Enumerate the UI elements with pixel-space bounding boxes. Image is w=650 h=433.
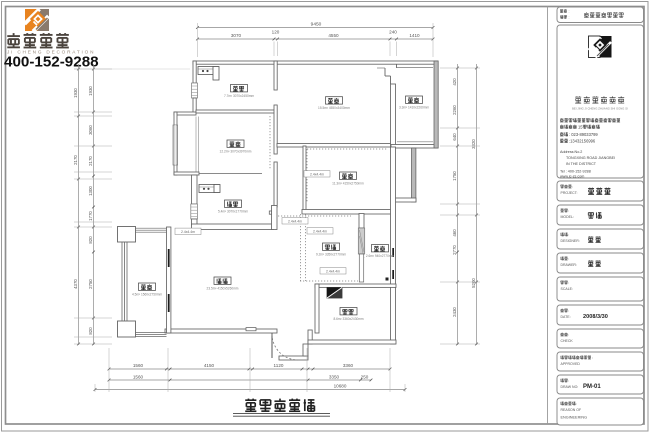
svg-text:2170: 2170: [73, 155, 78, 165]
svg-text::: :: [592, 356, 593, 360]
svg-text:10680: 10680: [334, 384, 347, 389]
svg-text:8.6m² 3360x2430mm: 8.6m² 3360x2430mm: [333, 317, 363, 321]
svg-text:9.2m² 3350x2770mm: 9.2m² 3350x2770mm: [316, 252, 346, 256]
svg-text:400-152-9288: 400-152-9288: [4, 54, 99, 71]
svg-text:1750: 1750: [452, 171, 457, 181]
svg-text::: :: [576, 402, 577, 406]
svg-text::: :: [569, 10, 570, 14]
svg-text:1560: 1560: [133, 374, 144, 379]
svg-text::: :: [568, 233, 569, 237]
svg-text::13432156996: :13432156996: [569, 139, 596, 144]
svg-text:23.5m² 4150x5260mm: 23.5m² 4150x5260mm: [207, 286, 239, 290]
svg-text::: :: [568, 257, 569, 261]
svg-text::: :: [568, 333, 569, 337]
svg-text:640: 640: [452, 133, 457, 141]
svg-text:120: 120: [272, 30, 280, 35]
svg-text:15.5m² 4550x3400mm: 15.5m² 4550x3400mm: [318, 106, 350, 110]
svg-text:TONGXING ROAD JIANGBEI: TONGXING ROAD JIANGBEI: [566, 156, 615, 160]
svg-text:11.3m² 4150x2750mm: 11.3m² 4150x2750mm: [332, 181, 364, 185]
svg-text:1770: 1770: [88, 211, 93, 221]
svg-text:820: 820: [88, 236, 93, 244]
svg-text:1120: 1120: [274, 363, 284, 368]
svg-text:MODEL:: MODEL:: [561, 215, 574, 219]
svg-text:4370: 4370: [73, 279, 78, 289]
svg-text:3320: 3320: [471, 139, 476, 149]
svg-text:4550: 4550: [328, 33, 339, 38]
svg-text:2430: 2430: [452, 307, 457, 317]
svg-text:REASON OF: REASON OF: [561, 408, 582, 412]
svg-text:PROJECT:: PROJECT:: [561, 191, 578, 195]
svg-text::: :: [568, 309, 569, 313]
svg-text:1930: 1930: [88, 86, 93, 96]
svg-text:DESIGNER:: DESIGNER:: [561, 239, 580, 243]
svg-text:3350: 3350: [329, 374, 340, 379]
svg-text:1410: 1410: [409, 33, 420, 38]
svg-text:1930: 1930: [73, 88, 78, 98]
svg-text::: :: [568, 209, 569, 213]
svg-text:DRAW NO:: DRAW NO:: [561, 385, 579, 389]
svg-text:4150: 4150: [204, 363, 215, 368]
svg-text:7.7m² 3070x2450mm: 7.7m² 3070x2450mm: [224, 94, 254, 98]
svg-text:2.4x4.4m: 2.4x4.4m: [310, 173, 324, 177]
svg-text:3060: 3060: [88, 125, 93, 135]
svg-text::: :: [568, 281, 569, 285]
svg-text:2008/3/30: 2008/3/30: [583, 314, 608, 320]
svg-text:460: 460: [452, 229, 457, 237]
svg-text:1300: 1300: [88, 186, 93, 196]
svg-text:2.4x4.4m: 2.4x4.4m: [326, 270, 340, 274]
svg-text:SCALE:: SCALE:: [561, 287, 573, 291]
svg-text:DRAWER:: DRAWER:: [561, 263, 577, 267]
svg-text:2170: 2170: [88, 156, 93, 166]
svg-text:2260: 2260: [452, 105, 457, 115]
svg-text:APPROVED: APPROVED: [561, 362, 581, 366]
svg-text:3070: 3070: [231, 33, 242, 38]
svg-text:250: 250: [361, 374, 369, 379]
svg-text:15: 15: [578, 125, 583, 130]
svg-text:9450: 9450: [311, 21, 322, 27]
svg-text::: :: [568, 379, 569, 383]
svg-text:12.2m² 3070x3970mm: 12.2m² 3070x3970mm: [220, 149, 252, 153]
svg-text:: 023-89033799: : 023-89033799: [569, 132, 598, 137]
svg-text::: :: [572, 185, 573, 189]
svg-text:240: 240: [389, 30, 397, 35]
svg-text:PM-01: PM-01: [583, 384, 601, 390]
svg-text:2750: 2750: [88, 279, 93, 289]
svg-text:4.5m² 1560x2750mm: 4.5m² 1560x2750mm: [132, 292, 162, 296]
svg-text:5.4m² 3070x1770mm: 5.4m² 3070x1770mm: [218, 209, 248, 213]
svg-text:www.jc-zs.com: www.jc-zs.com: [560, 174, 584, 178]
svg-text:5200: 5200: [471, 278, 476, 288]
svg-text::: :: [569, 16, 570, 20]
svg-text:CHECK: CHECK: [561, 339, 574, 343]
svg-text:2770: 2770: [452, 245, 457, 255]
svg-text:2.4x4.4m: 2.4x4.4m: [181, 230, 195, 234]
svg-text:Address:No.2: Address:No.2: [560, 150, 582, 154]
svg-text:420: 420: [452, 78, 457, 86]
svg-text:2.4x4.4m: 2.4x4.4m: [313, 230, 327, 234]
svg-text:IN THE DISTRICT: IN THE DISTRICT: [566, 162, 597, 166]
svg-text:820: 820: [88, 327, 93, 335]
svg-text:BEI JING JI CHENG ZHUANG SHI G: BEI JING JI CHENG ZHUANG SHI GONG SI: [572, 107, 628, 111]
svg-text:ENGINEERING: ENGINEERING: [561, 416, 588, 420]
svg-text:Tel : 400-152-9288: Tel : 400-152-9288: [560, 170, 591, 174]
svg-text:1560: 1560: [133, 363, 144, 368]
svg-text:3360: 3360: [343, 363, 354, 368]
svg-text:2.6m² 940x2770mm: 2.6m² 940x2770mm: [366, 254, 395, 258]
svg-text:3.3m² 1410x2260mm: 3.3m² 1410x2260mm: [399, 105, 429, 109]
svg-text:2.4x4.4m: 2.4x4.4m: [288, 220, 302, 224]
svg-text:DATE:: DATE:: [561, 315, 571, 319]
